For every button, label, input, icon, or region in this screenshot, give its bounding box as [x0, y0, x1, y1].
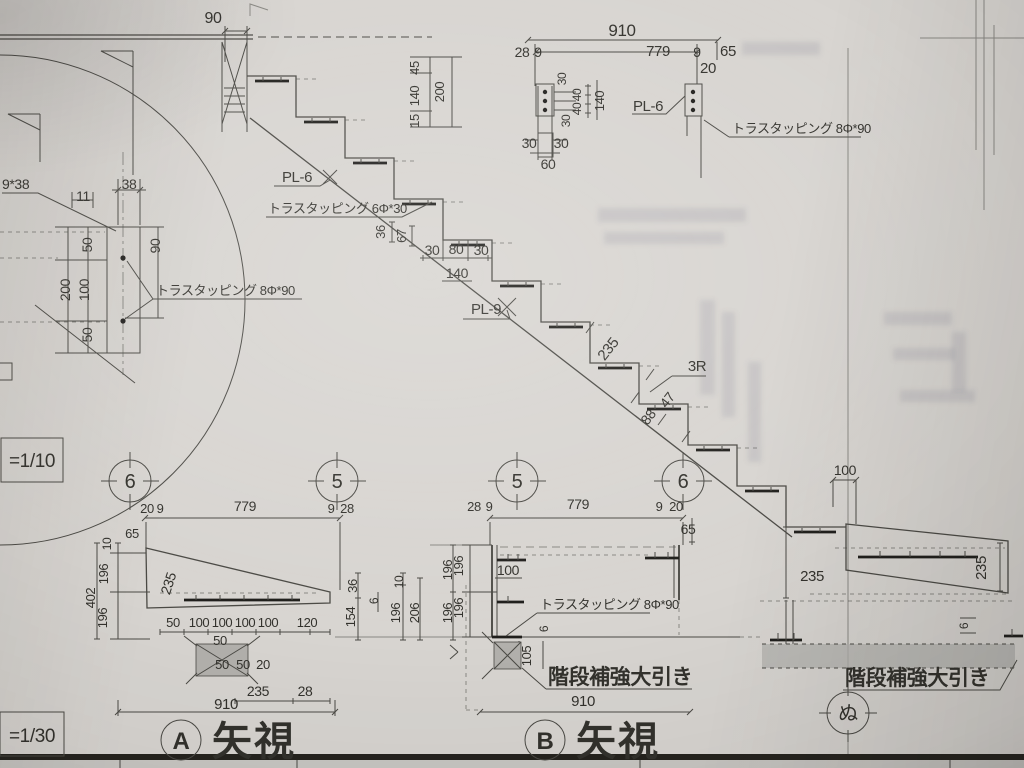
dim-left-11: 11 — [76, 188, 90, 204]
dim-b-9l: 9 — [486, 499, 493, 514]
dim-top-9r: 9 — [693, 44, 701, 60]
dim-b-196b: 196 — [451, 598, 466, 619]
dim-a-20: 20 — [140, 501, 154, 516]
dim-top-15: 15 — [407, 114, 422, 128]
callout-pl6-stair: PL-6 — [282, 169, 312, 186]
dim-b-6: 6 — [537, 625, 551, 632]
dim-mid-10: 10 — [392, 575, 406, 588]
dim-bolt-40a: 40 — [570, 88, 584, 101]
balloon-grid-5b: 5 — [512, 471, 523, 493]
dim-stair-30r: 30 — [474, 242, 489, 258]
stair-drawing-photo: 910 779 28 9 9 65 20 45 140 15 200 30 40… — [0, 0, 1024, 768]
dim-b-196t: 196 — [451, 556, 466, 577]
dim-top-45: 45 — [407, 61, 422, 75]
dim-stair-80: 80 — [449, 241, 464, 257]
right-side-detail — [760, 477, 1023, 742]
dim-a-50: 50 — [166, 615, 180, 630]
dim-r-100: 100 — [834, 462, 857, 478]
dim-left-38: 38 — [122, 176, 137, 192]
dim-top-140l: 140 — [407, 86, 422, 107]
dim-a-50a: 50 — [215, 657, 229, 672]
dim-top-run: 779 — [646, 43, 670, 60]
dim-stair-30l: 30 — [425, 242, 440, 258]
callout-pl6-top: PL-6 — [633, 98, 663, 115]
callout-joist-right: 階段補強大引き — [845, 666, 989, 690]
dim-a-402: 402 — [83, 588, 98, 609]
dim-left-200: 200 — [57, 278, 73, 301]
dim-bolt-40b: 40 — [570, 102, 584, 115]
dim-a-235b: 235 — [247, 683, 270, 699]
dim-mid-154: 154 — [343, 607, 358, 628]
dim-left-50t: 50 — [79, 237, 95, 252]
dim-top-65: 65 — [720, 43, 736, 60]
callout-joist-b: 階段補強大引き — [548, 665, 692, 689]
dim-a-50m: 50 — [213, 633, 227, 648]
grid-balloons — [101, 452, 712, 510]
dim-a-910: 910 — [214, 696, 238, 713]
dim-a-20b: 20 — [256, 657, 270, 672]
dim-stair-36: 36 — [373, 225, 388, 239]
dim-bolt-30b: 30 — [559, 114, 573, 127]
dim-mid-6: 6 — [367, 597, 381, 604]
scale-detail-label: =1/10 — [9, 451, 55, 472]
callout-tapping-left: トラスタッピング 8Φ*90 — [156, 283, 295, 298]
callout-pl9: PL-9 — [471, 301, 501, 318]
dim-r-6: 6 — [957, 622, 971, 629]
dim-top-total: 910 — [608, 21, 635, 40]
dim-slope-47: 47 — [656, 389, 678, 411]
dim-base-60: 60 — [541, 156, 556, 172]
dim-a-9l: 9 — [157, 501, 164, 516]
callout-screw-9x38: 9*38 — [2, 176, 30, 192]
dim-b-105: 105 — [519, 646, 534, 667]
dim-a-235: 235 — [157, 570, 179, 597]
dim-b-100: 100 — [497, 562, 520, 578]
dim-slope-235: 235 — [594, 335, 622, 364]
callout-tapping-top: トラスタッピング 8Φ*90 — [732, 121, 871, 136]
balloon-grid-5a: 5 — [332, 471, 343, 493]
dim-a-100b: 100 — [212, 615, 233, 630]
dim-a-28b: 28 — [298, 683, 313, 699]
dim-base-30l: 30 — [522, 135, 537, 151]
dim-a-9r: 9 — [328, 501, 335, 516]
dim-a-120: 120 — [297, 615, 318, 630]
dim-bolt-140: 140 — [592, 91, 607, 112]
dim-mid-36: 36 — [345, 579, 360, 593]
balloon-axis-nu: ぬ — [838, 703, 858, 725]
dim-mid-206: 206 — [407, 603, 422, 624]
balloon-grid-6b: 6 — [678, 471, 689, 493]
dim-top-9l: 9 — [534, 44, 542, 60]
dim-top-200: 200 — [432, 82, 447, 103]
dim-a-196t: 196 — [96, 564, 111, 585]
dim-stair-140: 140 — [446, 265, 469, 281]
dim-stair-90: 90 — [205, 10, 222, 27]
dim-left-100: 100 — [76, 278, 92, 301]
dim-b-28: 28 — [467, 499, 481, 514]
dim-bolt-30t: 30 — [555, 72, 569, 85]
dim-top-28: 28 — [515, 44, 530, 60]
dim-stair-67: 67 — [394, 229, 409, 243]
dim-top-20: 20 — [700, 60, 716, 77]
callout-3r: 3R — [688, 358, 707, 375]
balloon-grid-6a: 6 — [125, 471, 136, 493]
dim-a-10: 10 — [100, 537, 114, 550]
dim-a-196b: 196 — [95, 608, 110, 629]
dim-r-235l: 235 — [800, 568, 824, 585]
dim-a-100d: 100 — [258, 615, 279, 630]
view-b-title: 矢視 — [576, 720, 660, 764]
dim-a-100a: 100 — [189, 615, 210, 630]
dim-a-65: 65 — [125, 526, 139, 541]
dim-b-20: 20 — [669, 499, 683, 514]
dim-a-28: 28 — [340, 501, 354, 516]
left-scale-detail — [0, 51, 302, 383]
dim-b-65: 65 — [681, 521, 696, 537]
dim-mid-196a: 196 — [388, 603, 403, 624]
callout-tapping-b: トラスタッピング 8Φ*90 — [540, 597, 679, 612]
dim-a-100c: 100 — [235, 615, 256, 630]
dim-a-50b: 50 — [236, 657, 250, 672]
callout-tapping6: トラスタッピング 6Φ*30 — [268, 201, 407, 216]
dim-r-235r: 235 — [973, 556, 990, 580]
dim-b-779: 779 — [567, 496, 590, 512]
dim-a-779: 779 — [234, 498, 257, 514]
scale-view-label: =1/30 — [9, 726, 55, 747]
dim-base-30r: 30 — [554, 135, 569, 151]
dim-left-90: 90 — [147, 238, 163, 253]
view-a-detail — [94, 515, 490, 716]
dim-b-9r: 9 — [656, 499, 663, 514]
drawing-canvas: 910 779 28 9 9 65 20 45 140 15 200 30 40… — [0, 0, 1024, 768]
view-a-balloon-letter: A — [173, 728, 190, 755]
dim-left-50b: 50 — [79, 327, 95, 342]
view-a-title: 矢視 — [212, 720, 296, 764]
view-b-balloon-letter: B — [537, 728, 554, 755]
dim-b-910: 910 — [571, 693, 595, 710]
